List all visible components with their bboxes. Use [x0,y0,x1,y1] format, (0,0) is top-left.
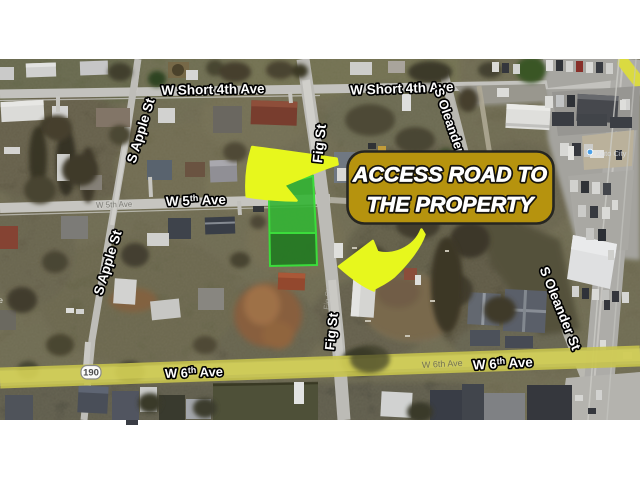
svg-text:W 6th Ave: W 6th Ave [422,358,463,370]
svg-text:W Short 4th Ave: W Short 4th Ave [161,81,265,98]
svg-text:190: 190 [83,368,99,379]
svg-text:W 5th Ave: W 5th Ave [96,200,133,210]
svg-text:ACCESS ROAD TO: ACCESS ROAD TO [352,163,548,187]
svg-text:THE PROPERTY: THE PROPERTY [367,193,536,217]
svg-text:Auto City: Auto City [596,149,627,158]
svg-text:se: se [0,295,3,305]
